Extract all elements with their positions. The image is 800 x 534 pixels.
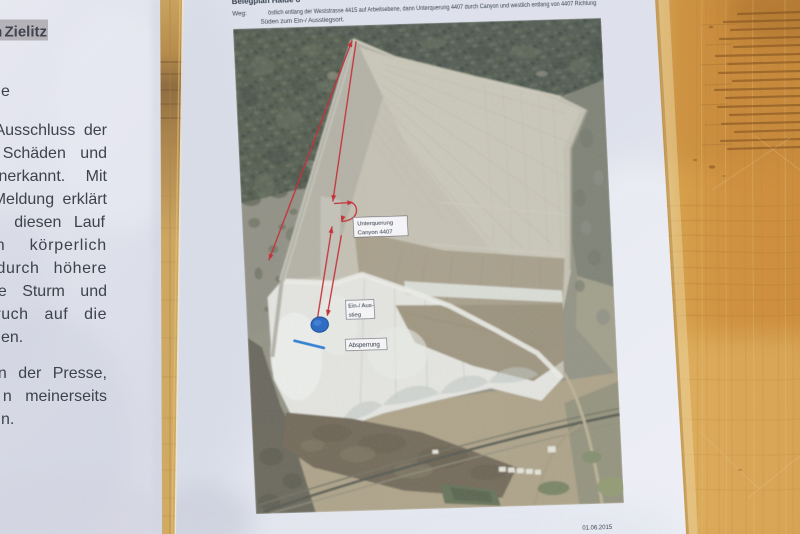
svg-text:Absperrung: Absperrung <box>348 342 380 349</box>
svg-text:anerkannt. Mit: anerkannt. Mit <box>0 168 108 185</box>
svg-text:ruch auf die: ruch auf die <box>0 306 107 323</box>
svg-text:Unterquerung: Unterquerung <box>357 220 393 227</box>
svg-text:n Zielitz: n Zielitz <box>0 24 47 41</box>
svg-text:durch höhere: durch höhere <box>0 260 107 277</box>
svg-text:Schäden und: Schäden und <box>3 145 107 162</box>
svg-text:e Sturm und: e Sturm und <box>0 283 107 300</box>
svg-text:n meinerseits: n meinerseits <box>3 388 107 405</box>
svg-text:en.: en. <box>1 329 23 346</box>
svg-text:Ausschluss der: Ausschluss der <box>0 122 108 139</box>
svg-text:stieg: stieg <box>349 312 362 318</box>
svg-text:Weg:: Weg: <box>232 10 247 17</box>
svg-text:Meldung erklärt: Meldung erklärt <box>0 191 108 208</box>
svg-text:Ein-/ Aus-: Ein-/ Aus- <box>348 303 374 310</box>
svg-text:n körperlich: n körperlich <box>0 237 107 254</box>
svg-text:01.06.2015: 01.06.2015 <box>582 525 613 532</box>
svg-text:Canyon 4407: Canyon 4407 <box>358 229 393 236</box>
svg-text:n.: n. <box>1 411 14 428</box>
svg-text:e: e <box>1 83 10 100</box>
svg-text:diesen Lauf: diesen Lauf <box>14 214 105 231</box>
svg-text:n der Presse,: n der Presse, <box>0 365 107 382</box>
